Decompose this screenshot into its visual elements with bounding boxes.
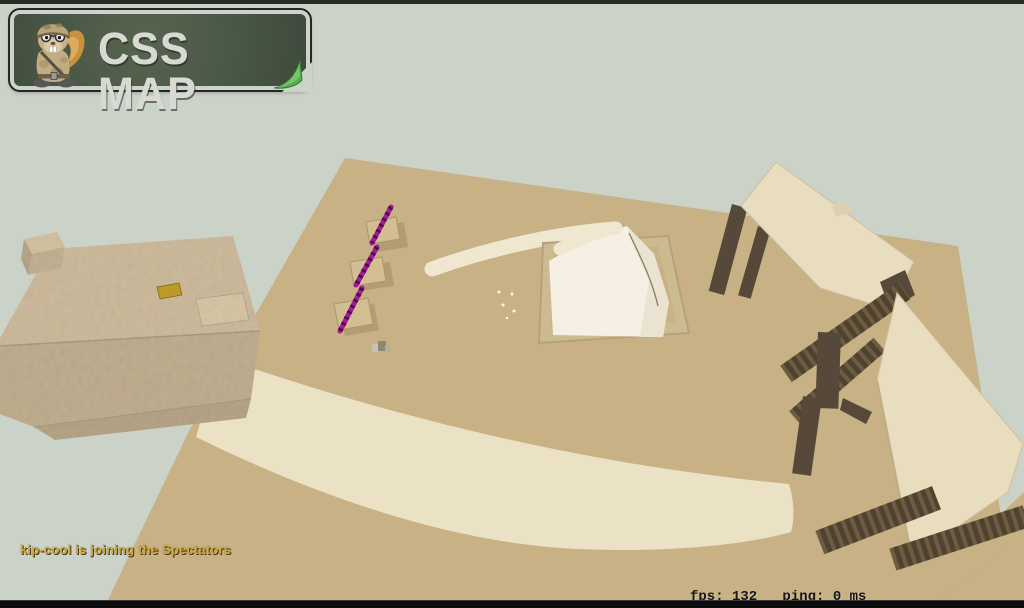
hamster-mascot-icon — [18, 16, 98, 88]
wood-pillar — [815, 332, 841, 409]
chat-message: kip-cool is joining the Spectators — [20, 542, 231, 557]
game-viewport[interactable]: kip-cool is joining the Spectators fps: … — [0, 0, 1024, 608]
building-step — [196, 293, 249, 326]
mascot-tooth — [53, 47, 56, 53]
bottom-bar — [0, 600, 1024, 608]
page-curl-icon — [268, 52, 312, 92]
mascot-nose — [51, 42, 56, 45]
mascot-tooth — [50, 47, 53, 53]
stone-building — [0, 232, 260, 440]
top-bar — [0, 0, 1024, 4]
mascot-buckle — [51, 73, 57, 80]
logo-banner: CSS MAP — [10, 10, 310, 90]
